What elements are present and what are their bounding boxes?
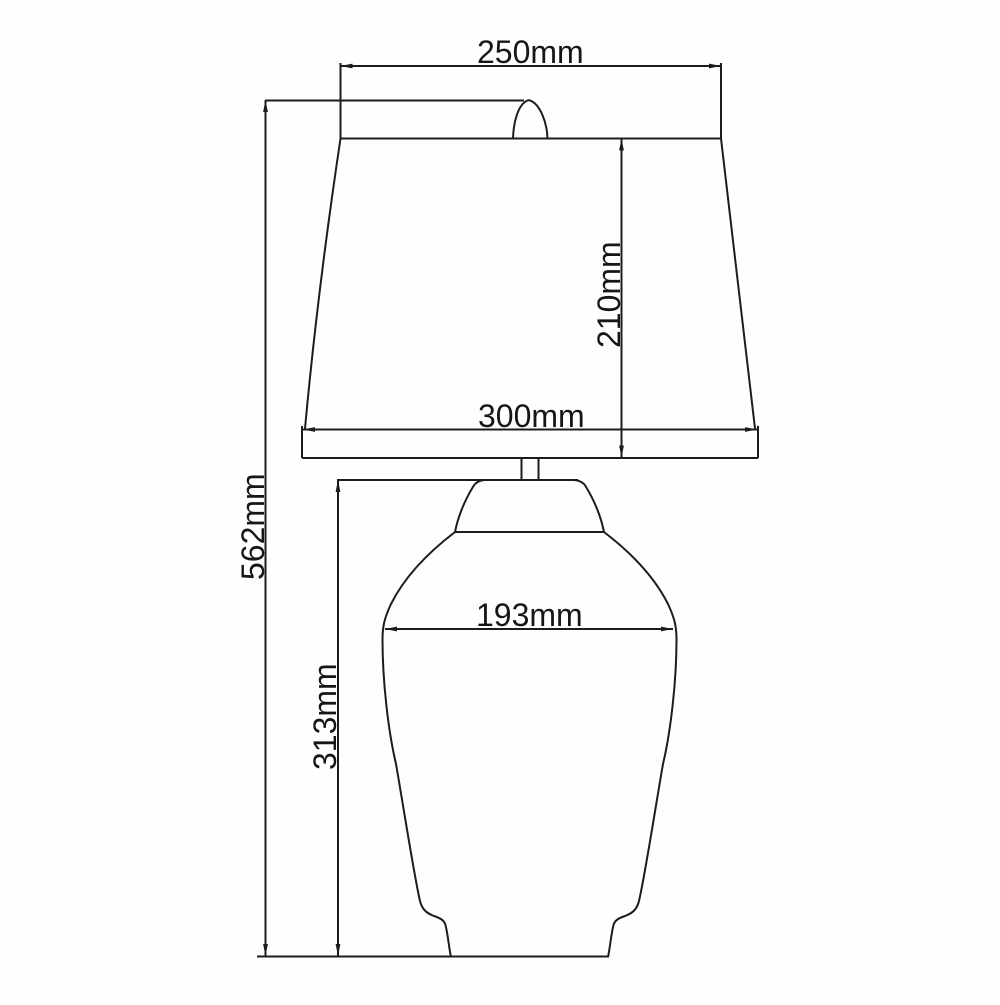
svg-text:210mm: 210mm	[591, 241, 627, 348]
svg-text:313mm: 313mm	[307, 663, 343, 770]
svg-text:562mm: 562mm	[235, 473, 271, 580]
svg-text:300mm: 300mm	[478, 398, 585, 434]
svg-text:250mm: 250mm	[477, 34, 584, 70]
svg-text:193mm: 193mm	[476, 597, 583, 633]
